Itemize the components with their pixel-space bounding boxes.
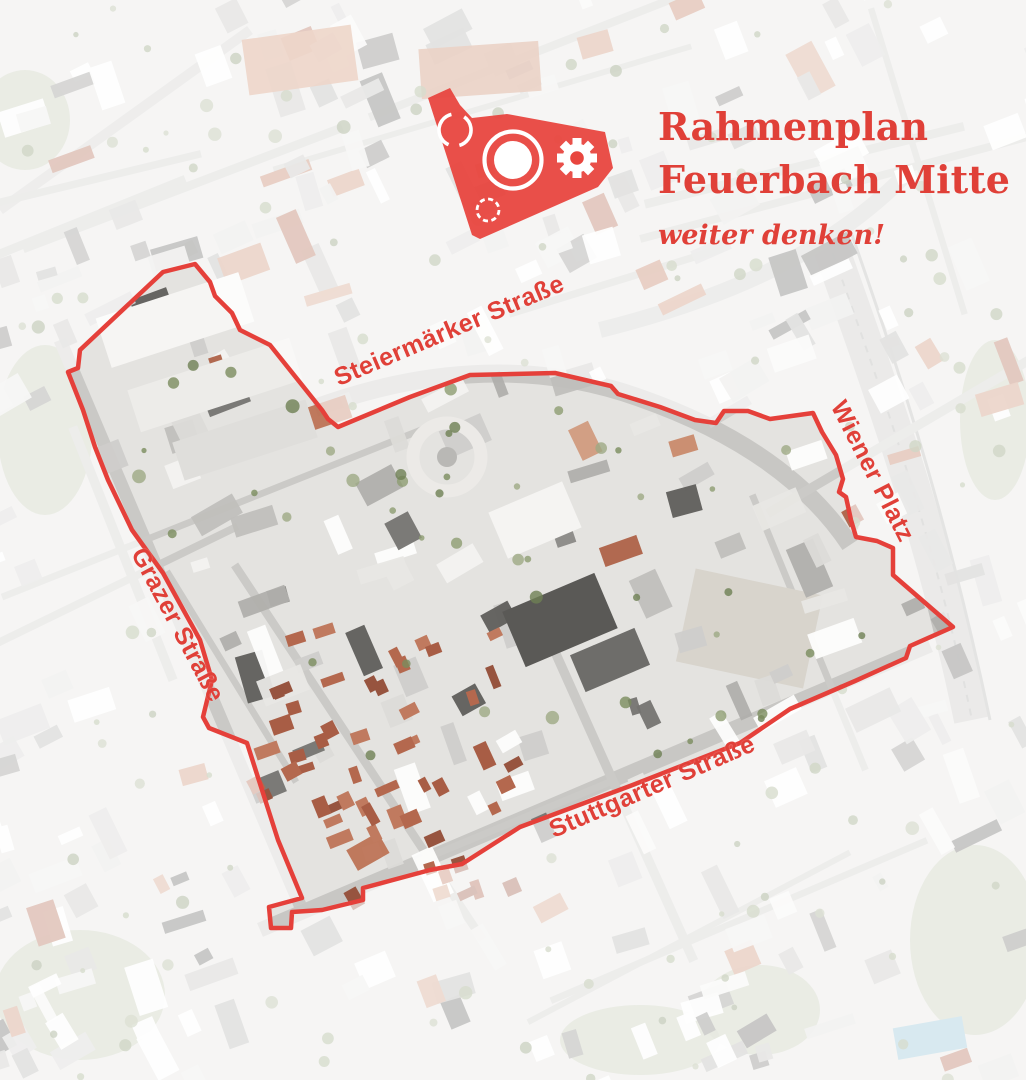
poster-title-line2: Feuerbach Mitte	[658, 153, 1010, 206]
hub-circle-icon	[494, 141, 532, 179]
poster-title-line1: Rahmenplan	[658, 100, 1010, 153]
title-block: Rahmenplan Feuerbach Mitte weiter denken…	[658, 100, 1010, 251]
map-poster: Steiermärker Straße Wiener Platz Grazer …	[0, 0, 1026, 1080]
poster-subtitle: weiter denken!	[658, 220, 1010, 251]
rahmenplan-logo	[425, 85, 620, 250]
gear-icon	[557, 138, 597, 178]
